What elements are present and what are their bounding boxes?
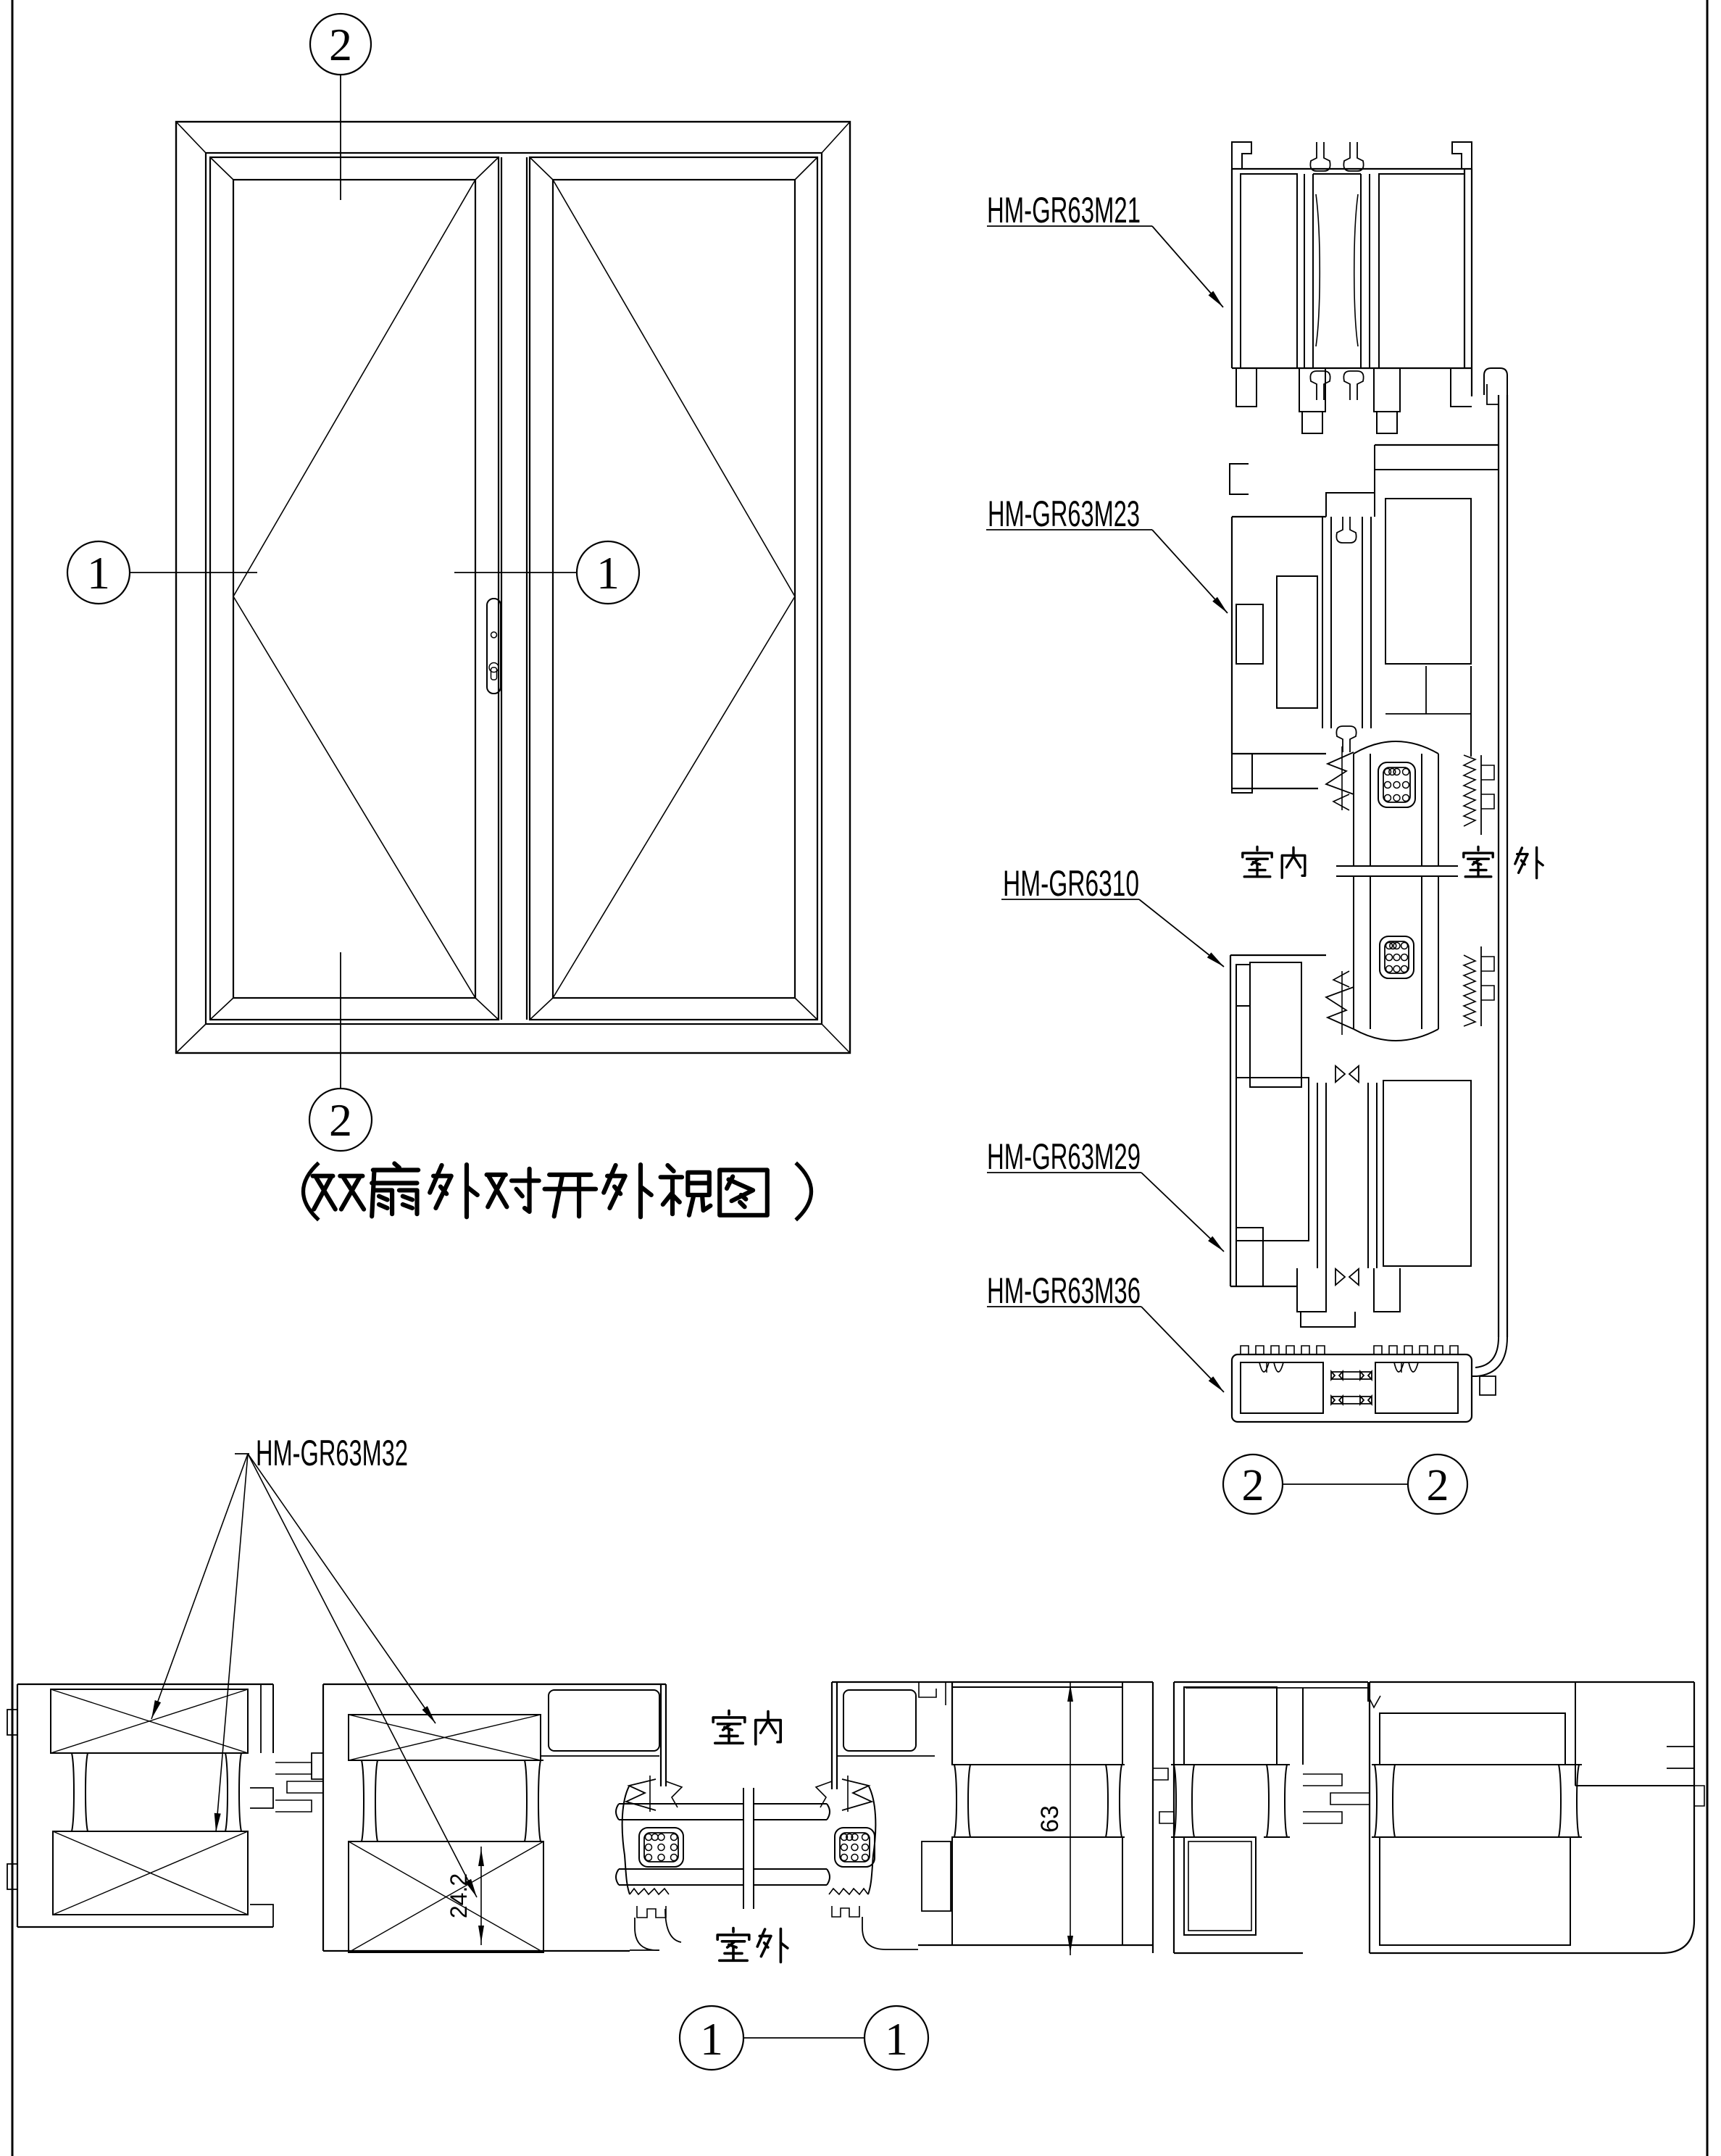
svg-text:2: 2 <box>1427 1461 1449 1510</box>
svg-text:HM-GR6310: HM-GR6310 <box>1003 863 1139 904</box>
svg-text:2: 2 <box>329 19 352 70</box>
svg-text:1: 1 <box>596 547 620 599</box>
svg-text:2: 2 <box>1242 1461 1264 1510</box>
svg-text:HM-GR63M23: HM-GR63M23 <box>988 494 1140 534</box>
svg-text:HM-GR63M21: HM-GR63M21 <box>987 190 1141 230</box>
svg-text:63: 63 <box>1036 1805 1064 1833</box>
svg-text:HM-GR63M36: HM-GR63M36 <box>987 1270 1141 1311</box>
svg-text:2: 2 <box>329 1094 352 1146</box>
svg-text:1: 1 <box>87 547 110 599</box>
svg-text:1: 1 <box>885 2013 908 2065</box>
svg-text:HM-GR63M29: HM-GR63M29 <box>987 1136 1141 1177</box>
svg-text:1: 1 <box>700 2013 723 2065</box>
svg-text:HM-GR63M32: HM-GR63M32 <box>256 1433 408 1473</box>
